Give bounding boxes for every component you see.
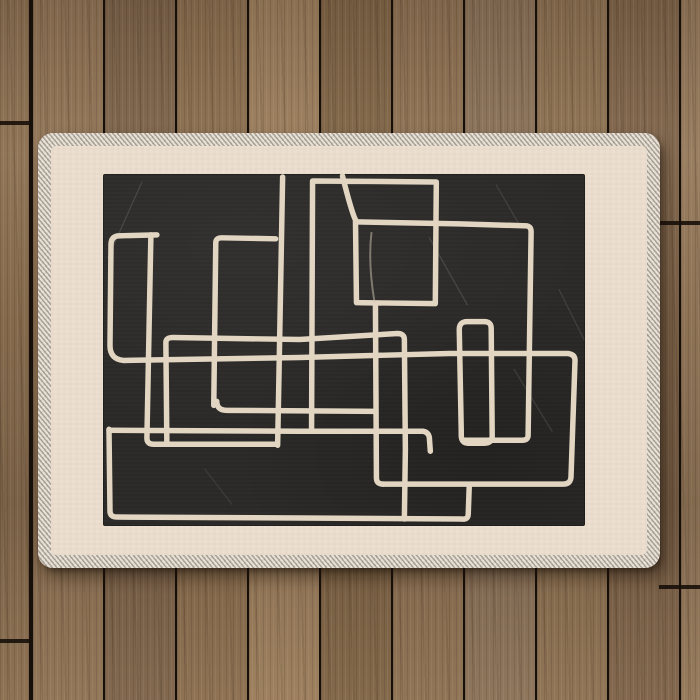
art-line	[278, 177, 283, 445]
abstract-line-art	[103, 174, 585, 526]
panel-scratch	[496, 185, 521, 228]
rug	[38, 133, 660, 568]
panel-scratch	[205, 469, 232, 504]
art-line	[109, 430, 430, 451]
plank-joint	[659, 221, 700, 225]
panel-scratch	[514, 369, 552, 431]
panel-scratch	[559, 290, 584, 340]
wood-plank	[681, 0, 700, 700]
art-line	[356, 222, 531, 440]
art-line	[214, 238, 276, 406]
scene	[0, 0, 700, 700]
art-line	[375, 304, 383, 484]
plank-joint	[0, 639, 31, 643]
art-faint-line	[370, 233, 374, 302]
plank-joint	[659, 585, 700, 589]
art-line	[217, 401, 376, 411]
art-panel	[103, 174, 585, 526]
wood-plank	[0, 0, 29, 700]
art-line	[459, 322, 492, 444]
plank-joint	[0, 121, 31, 125]
